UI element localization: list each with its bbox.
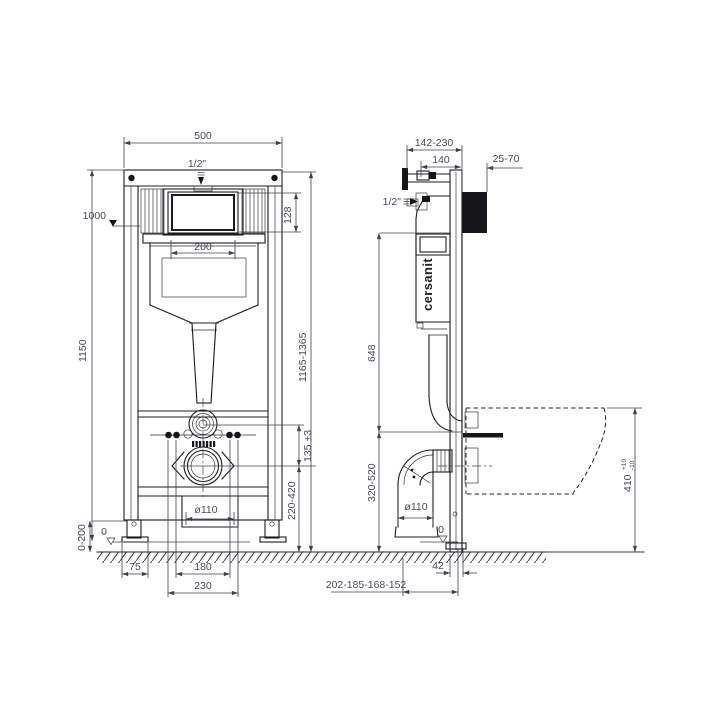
mounting-stud-icon [226, 432, 233, 439]
dim-wall-range: 25-70 [493, 153, 520, 165]
datum-icon [439, 536, 447, 543]
bowl-connections [438, 233, 503, 552]
dim-level-1000: 1000 [83, 210, 107, 222]
dim-front-width: 500 [194, 130, 212, 142]
dim-stud-180: 180 [194, 561, 212, 573]
dim-bowl-height-tol-minus: -10 [629, 460, 636, 470]
dim-stud-230: 230 [194, 580, 212, 592]
datum-zero-front: 0 [101, 526, 107, 538]
corner-bolt-icon [128, 175, 134, 181]
dim-bowl-height: 410 [622, 474, 634, 492]
dim-depth-range: 142-230 [415, 137, 454, 149]
floor-section [97, 552, 644, 563]
dim-side-inlet: 1/2" [383, 196, 402, 208]
wall-bracket [402, 168, 450, 190]
dim-upper-span: 648 [366, 344, 378, 362]
dim-drain-depth-series: 202-185-168-152 [326, 579, 407, 591]
dim-opening-height: 128 [282, 206, 294, 224]
front-view: 500 1/2" 1000 128 200 [76, 130, 316, 597]
level-mark-icon [109, 220, 117, 227]
brand-logo: cersanit [420, 258, 435, 311]
fixing-hole-icon [184, 430, 192, 438]
mounting-stud-icon [234, 432, 241, 439]
toilet-bowl-outline [466, 408, 606, 494]
cistern-side: cersanit [407, 193, 450, 329]
wall-finish-block [462, 192, 487, 233]
technical-drawing-page: 500 1/2" 1000 128 200 [0, 0, 720, 720]
dim-foot-width: 75 [129, 561, 141, 573]
dim-drain-height: 220-420 [286, 481, 298, 520]
installation-frame-drawing: 500 1/2" 1000 128 200 [0, 0, 720, 720]
dim-depth: 140 [432, 154, 450, 166]
dim-pipe-wall-offset: 42 [432, 560, 444, 572]
inspection-opening [163, 186, 243, 235]
dim-front-inlet: 1/2" [188, 158, 207, 170]
fixing-hole-icon [214, 430, 222, 438]
mounting-stud-side-icon [463, 433, 503, 438]
dim-opening-width: 200 [194, 241, 212, 253]
dim-drain-dia-side: ø110 [404, 501, 427, 513]
datum-zero-side: 0 [438, 524, 444, 536]
dim-lower-span: 320-520 [366, 463, 378, 502]
dim-inlet-to-drain: 135 ±3 [302, 430, 314, 462]
flush-pipe-side [429, 335, 462, 431]
water-inlet-arrow-icon [198, 170, 205, 185]
datum-icon [107, 538, 115, 545]
dim-drain-dia-front: ø110 [194, 504, 217, 516]
cistern-front [143, 234, 265, 403]
side-view: cersanit [326, 137, 644, 596]
dim-bowl-height-tol-plus: +10 [621, 459, 628, 470]
adjustable-legs [122, 520, 286, 542]
dim-frame-height: 1150 [77, 339, 89, 362]
dim-leg-range: 0-200 [76, 524, 88, 551]
dim-install-height: 1165-1365 [297, 332, 309, 382]
mounting-stud-icon [165, 432, 172, 439]
mounting-stud-icon [173, 432, 180, 439]
corner-bolt-icon [271, 175, 277, 181]
